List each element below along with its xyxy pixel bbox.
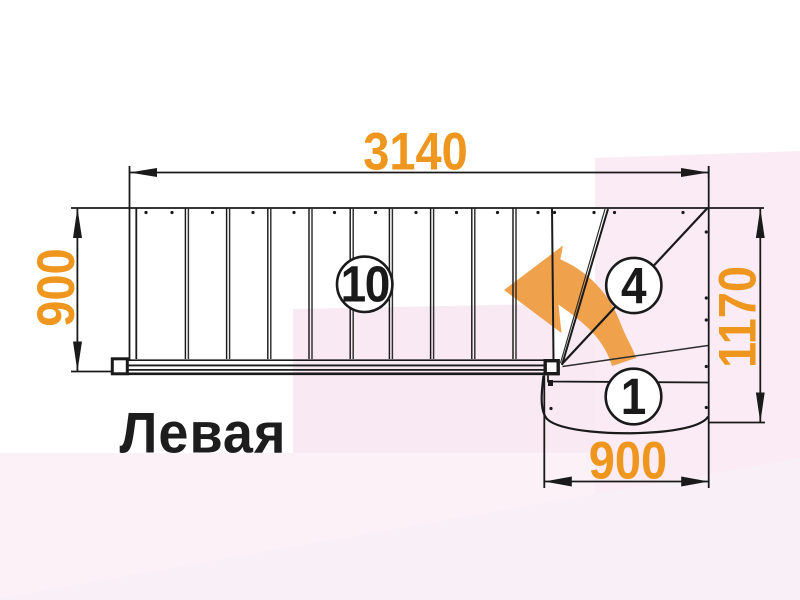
- svg-text:900: 900: [27, 248, 86, 326]
- svg-text:Левая: Левая: [120, 401, 287, 465]
- svg-text:3140: 3140: [363, 122, 468, 181]
- svg-text:4: 4: [621, 258, 647, 315]
- svg-text:1: 1: [621, 369, 647, 426]
- svg-text:10: 10: [341, 257, 389, 314]
- svg-text:900: 900: [589, 431, 667, 490]
- svg-text:1170: 1170: [708, 266, 767, 368]
